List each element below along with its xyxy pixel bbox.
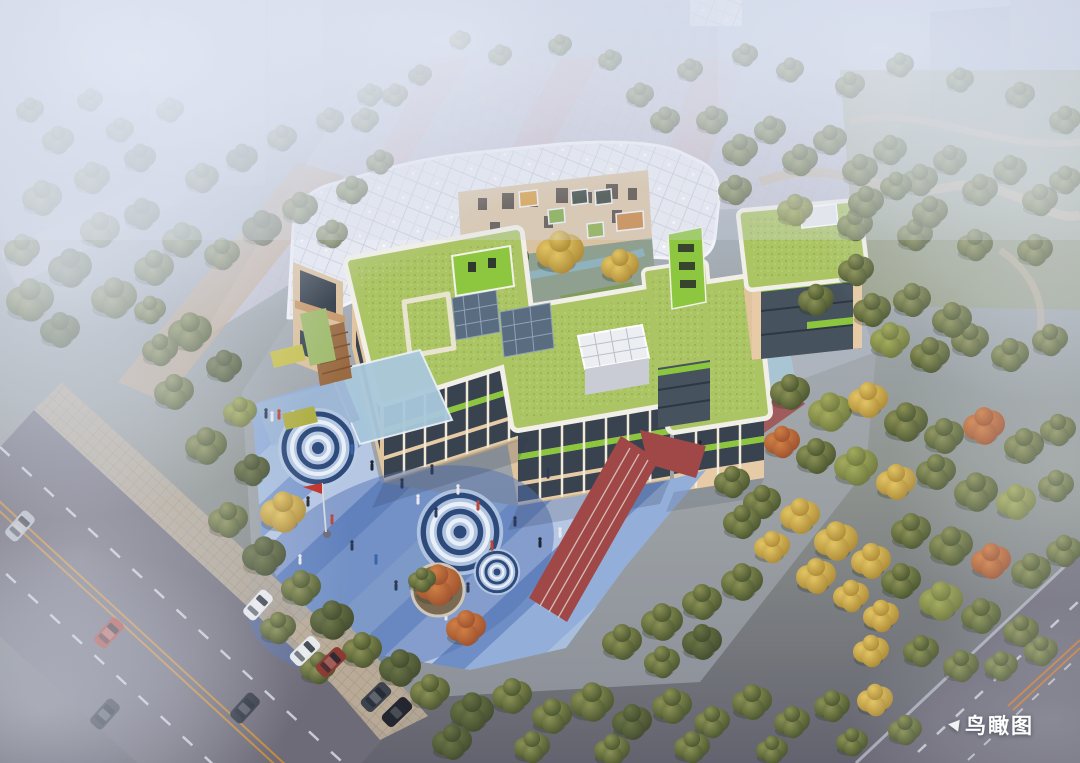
ring-motif-3 (474, 549, 520, 595)
aerial-view-image (0, 0, 1080, 763)
facade-d2 (658, 360, 710, 428)
caption: 鸟瞰图 (948, 710, 1034, 740)
skylight-cube (578, 325, 649, 395)
caption-label: 鸟瞰图 (965, 710, 1034, 740)
caption-arrow-icon (947, 718, 960, 731)
green-stair-box (452, 246, 514, 296)
birdseye-render: 鸟瞰图 (0, 0, 1080, 763)
